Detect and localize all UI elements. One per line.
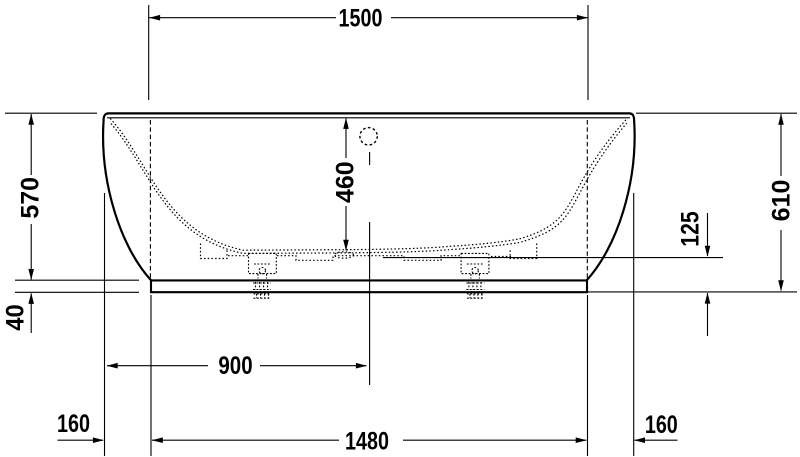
svg-text:610: 610	[768, 180, 796, 222]
svg-text:900: 900	[218, 351, 252, 379]
svg-text:125: 125	[676, 211, 704, 247]
svg-text:1500: 1500	[339, 4, 383, 32]
svg-text:160: 160	[645, 411, 678, 439]
svg-text:160: 160	[57, 410, 90, 438]
svg-text:1480: 1480	[345, 427, 389, 455]
svg-text:570: 570	[17, 177, 45, 219]
svg-text:40: 40	[2, 304, 30, 330]
svg-text:460: 460	[332, 161, 360, 203]
